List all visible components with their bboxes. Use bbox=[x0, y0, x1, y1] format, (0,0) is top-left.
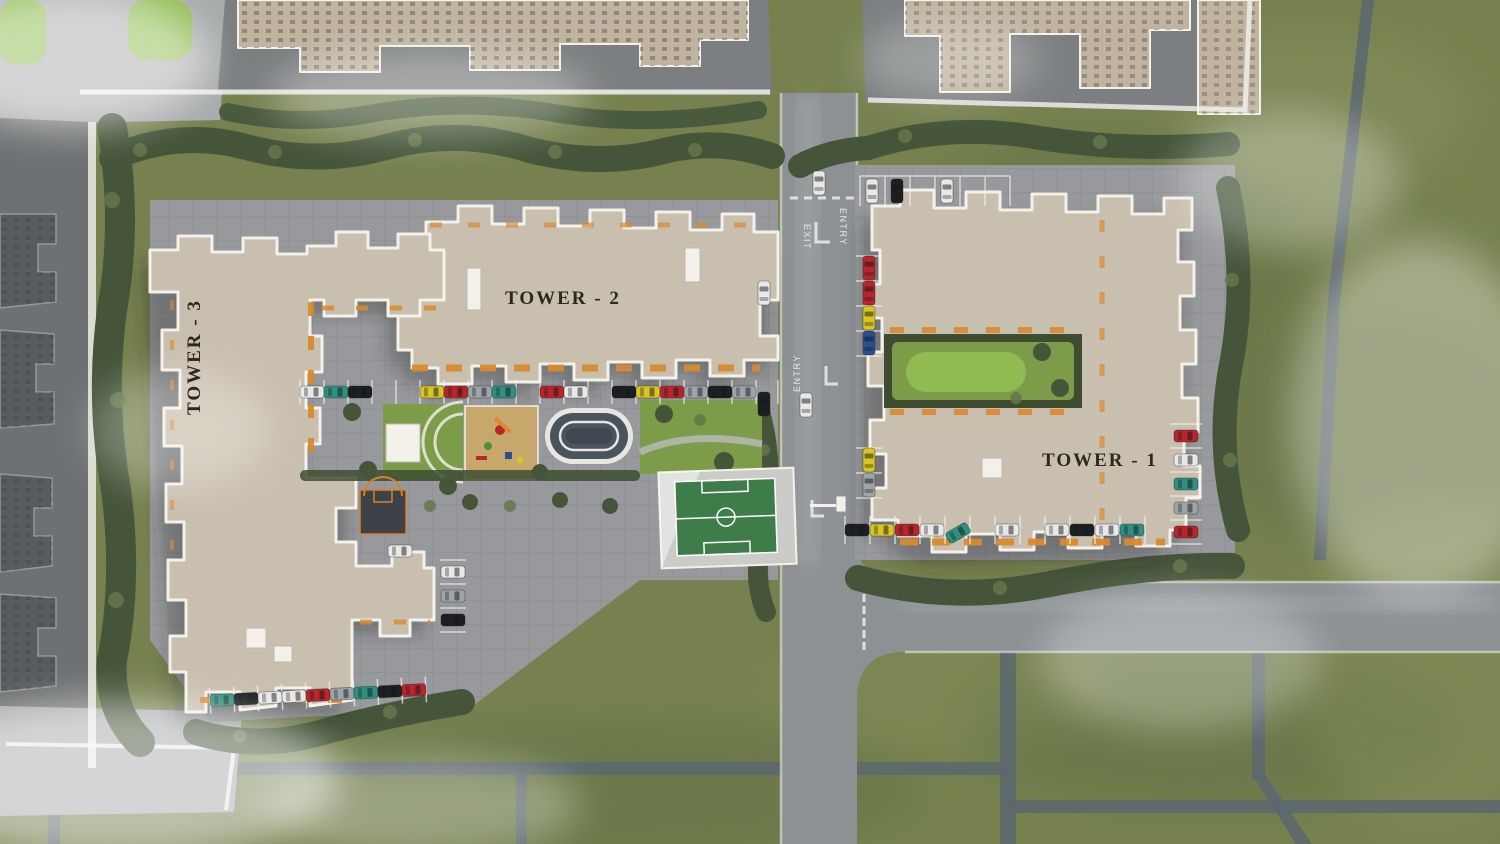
entry-road-marking-mid: ENTRY bbox=[792, 354, 802, 392]
rooftop-cube bbox=[982, 458, 1002, 478]
master-plan-rendering bbox=[0, 0, 1500, 844]
rooftop-cube bbox=[246, 628, 266, 648]
tower-1-label: TOWER - 1 bbox=[1042, 450, 1158, 472]
hedge-strip bbox=[300, 470, 640, 481]
master-plan-scene: TOWER - 2 TOWER - 1 TOWER - 3 ENTRY EXIT… bbox=[0, 0, 1500, 844]
entry-road-marking-top: ENTRY bbox=[838, 208, 848, 246]
courtyard-garden bbox=[884, 334, 1082, 408]
pavilion bbox=[386, 424, 420, 462]
garden-lawn bbox=[640, 400, 762, 474]
rooftop-cube bbox=[467, 268, 481, 310]
tower-1-building bbox=[866, 190, 1200, 552]
rooftop-cube bbox=[274, 646, 292, 662]
exit-road-marking-top: EXIT bbox=[802, 224, 812, 250]
rooftop-cube bbox=[685, 248, 700, 282]
kids-play-area bbox=[465, 406, 538, 480]
football-court bbox=[658, 468, 796, 569]
tower-2-label: TOWER - 2 bbox=[505, 288, 621, 310]
tower-3-label: TOWER - 3 bbox=[184, 311, 206, 415]
car-on-road bbox=[813, 171, 825, 195]
swimming-pool bbox=[545, 408, 633, 464]
